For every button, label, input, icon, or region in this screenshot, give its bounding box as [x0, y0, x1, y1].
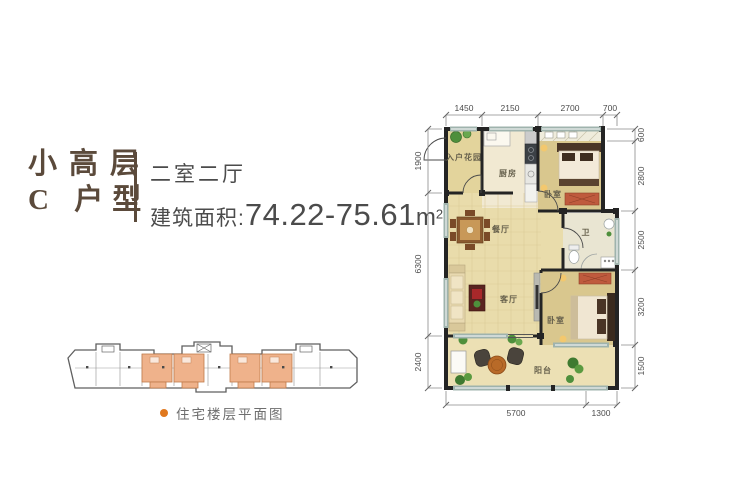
area-row: 建筑面积:74.22-75.61m2	[150, 197, 443, 233]
dim-right-1: 600	[636, 128, 646, 142]
bullet-dot-icon	[160, 409, 168, 417]
dim-top-1: 1450	[455, 103, 474, 113]
room-label-balcony: 阳台	[534, 365, 552, 375]
dim-top-3: 2700	[561, 103, 580, 113]
dim-top-2: 2150	[501, 103, 520, 113]
room-label-bedroom1: 卧室	[544, 189, 562, 199]
floorplan-svg: 1450 2150 2700 700 600 2800 2500 3200 15…	[413, 93, 748, 423]
dim-right-4: 3200	[636, 297, 646, 316]
diagram-caption: 住宅楼层平面图	[176, 403, 285, 423]
area-value: 74.22-75.61	[245, 197, 416, 232]
page-title-line2: C 户型	[28, 182, 151, 218]
title-block: 小高层 C 户型	[28, 146, 151, 218]
room-label-living: 客厅	[499, 294, 518, 304]
room-label-bedroom2: 卧室	[547, 315, 565, 325]
apartment-floorplan: 1450 2150 2700 700 600 2800 2500 3200 15…	[413, 93, 748, 423]
dim-left-1: 1900	[413, 151, 423, 170]
building-diagram	[62, 336, 364, 400]
info-block: 二室二厅 建筑面积:74.22-75.61m2	[150, 158, 443, 233]
dim-bottom-2: 1300	[592, 408, 611, 418]
dim-right-2: 2800	[636, 166, 646, 185]
dim-left-2: 6300	[413, 254, 423, 273]
page-title-line1: 小高层	[28, 146, 151, 182]
title-divider	[134, 152, 137, 222]
building-diagram-svg	[62, 336, 364, 400]
room-label-entry-garden: 入户花园	[445, 152, 482, 162]
area-label: 建筑面积:	[150, 207, 245, 230]
dim-bottom-1: 5700	[507, 408, 526, 418]
layout-subtitle: 二室二厅	[150, 158, 443, 188]
room-label-dining: 餐厅	[491, 224, 510, 234]
diagram-caption-row: 住宅楼层平面图	[160, 403, 285, 423]
dim-top-4: 700	[603, 103, 617, 113]
dim-right-3: 2500	[636, 230, 646, 249]
dim-right-5: 1500	[636, 356, 646, 375]
floorplan-page: 小高层 C 户型 二室二厅 建筑面积:74.22-75.61m2	[0, 0, 750, 500]
entry-door-arc	[424, 138, 446, 160]
room-label-bath: 卫	[582, 228, 591, 237]
room-label-kitchen: 厨房	[499, 168, 517, 178]
dim-left-3: 2400	[413, 352, 423, 371]
